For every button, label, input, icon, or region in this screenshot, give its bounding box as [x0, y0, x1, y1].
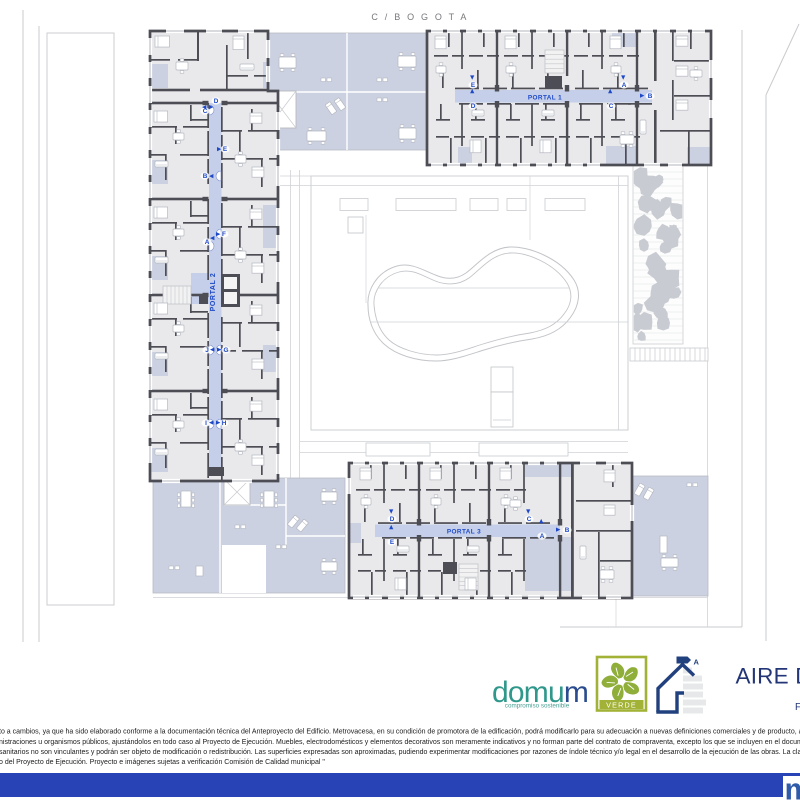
svg-text:C: C [609, 103, 614, 110]
svg-text:C / B O G O T A: C / B O G O T A [371, 12, 468, 22]
svg-text:F: F [222, 231, 226, 238]
svg-text:A: A [540, 533, 545, 540]
svg-text:J: J [205, 347, 209, 354]
svg-text:E: E [390, 539, 395, 546]
svg-text:H: H [222, 420, 227, 427]
svg-text:sanitarios no son vinculantes: sanitarios no son vinculantes y podrán s… [0, 749, 800, 756]
svg-text:C: C [203, 108, 208, 115]
svg-text:nistraciones u organismos púb: nistraciones u organismos públicos, ajus… [0, 739, 800, 746]
svg-text:PORTAL 3: PORTAL 3 [447, 529, 481, 536]
svg-text:D: D [214, 98, 219, 105]
svg-text:D: D [390, 516, 395, 523]
svg-text:B: B [565, 527, 570, 534]
svg-text:compromiso sostenible: compromiso sostenible [505, 703, 570, 710]
svg-text:A: A [694, 658, 700, 667]
svg-text:D: D [471, 103, 476, 110]
svg-text:B: B [648, 93, 653, 100]
svg-text:F: F [795, 702, 800, 713]
svg-text:to a cambios, ya que ha sido e: to a cambios, ya que ha sido elaborado c… [0, 729, 800, 736]
svg-text:AIRE DE: AIRE DE [736, 664, 800, 689]
svg-text:A: A [622, 82, 627, 89]
svg-text:A: A [205, 239, 210, 246]
svg-text:PORTAL 1: PORTAL 1 [528, 95, 562, 102]
svg-text:VERDE: VERDE [606, 700, 637, 709]
svg-text:I: I [205, 420, 207, 427]
svg-text:o del Proyecto de Ejecución. P: o del Proyecto de Ejecución. Proyecto e … [0, 759, 325, 766]
svg-text:G: G [224, 347, 229, 354]
svg-text:C: C [527, 516, 532, 523]
svg-text:PORTAL 2: PORTAL 2 [210, 273, 217, 312]
svg-text:m: m [785, 772, 800, 800]
svg-text:E: E [471, 82, 476, 89]
svg-text:B: B [203, 173, 208, 180]
svg-text:E: E [223, 146, 228, 153]
